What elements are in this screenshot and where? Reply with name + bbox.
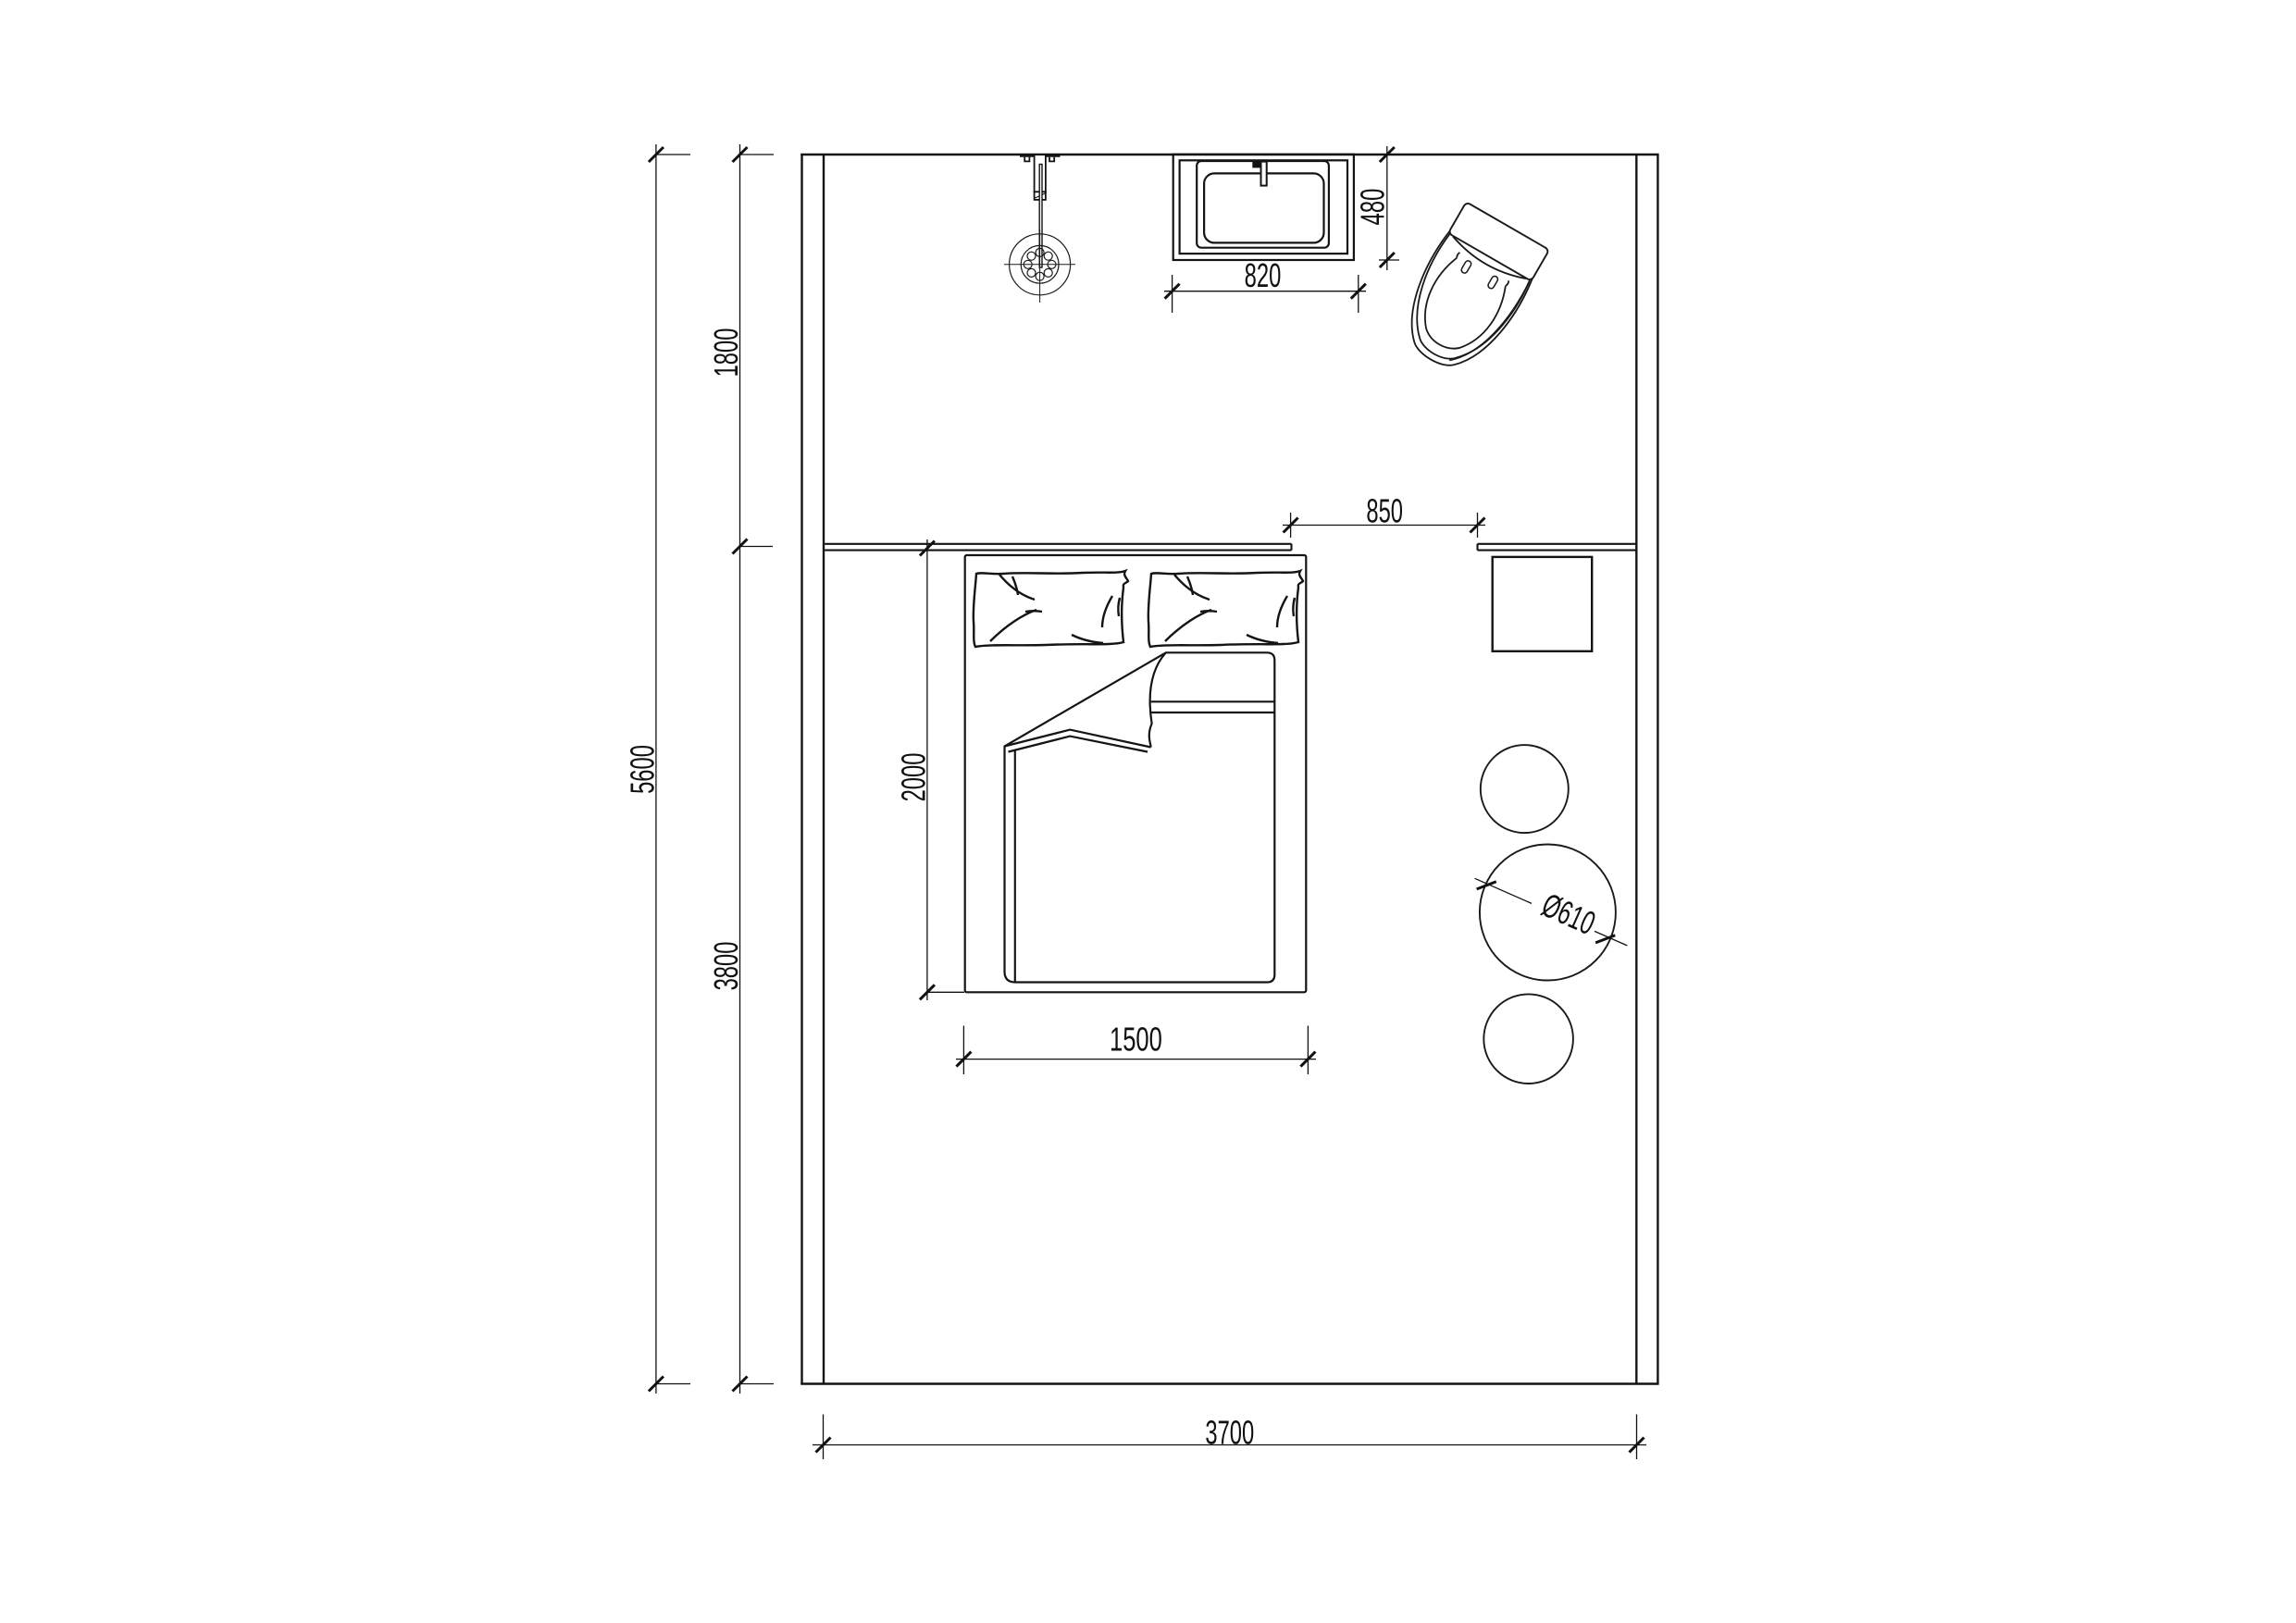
svg-text:850: 850 xyxy=(1366,493,1403,530)
svg-text:Ø610: Ø610 xyxy=(1536,886,1600,942)
svg-text:2000: 2000 xyxy=(896,753,933,802)
svg-text:3700: 3700 xyxy=(1205,1415,1254,1452)
svg-text:1800: 1800 xyxy=(708,328,745,378)
svg-text:480: 480 xyxy=(1355,189,1392,226)
svg-text:3800: 3800 xyxy=(708,942,745,991)
svg-text:1500: 1500 xyxy=(1110,1021,1162,1058)
svg-text:820: 820 xyxy=(1245,257,1282,294)
svg-text:5600: 5600 xyxy=(625,745,662,794)
